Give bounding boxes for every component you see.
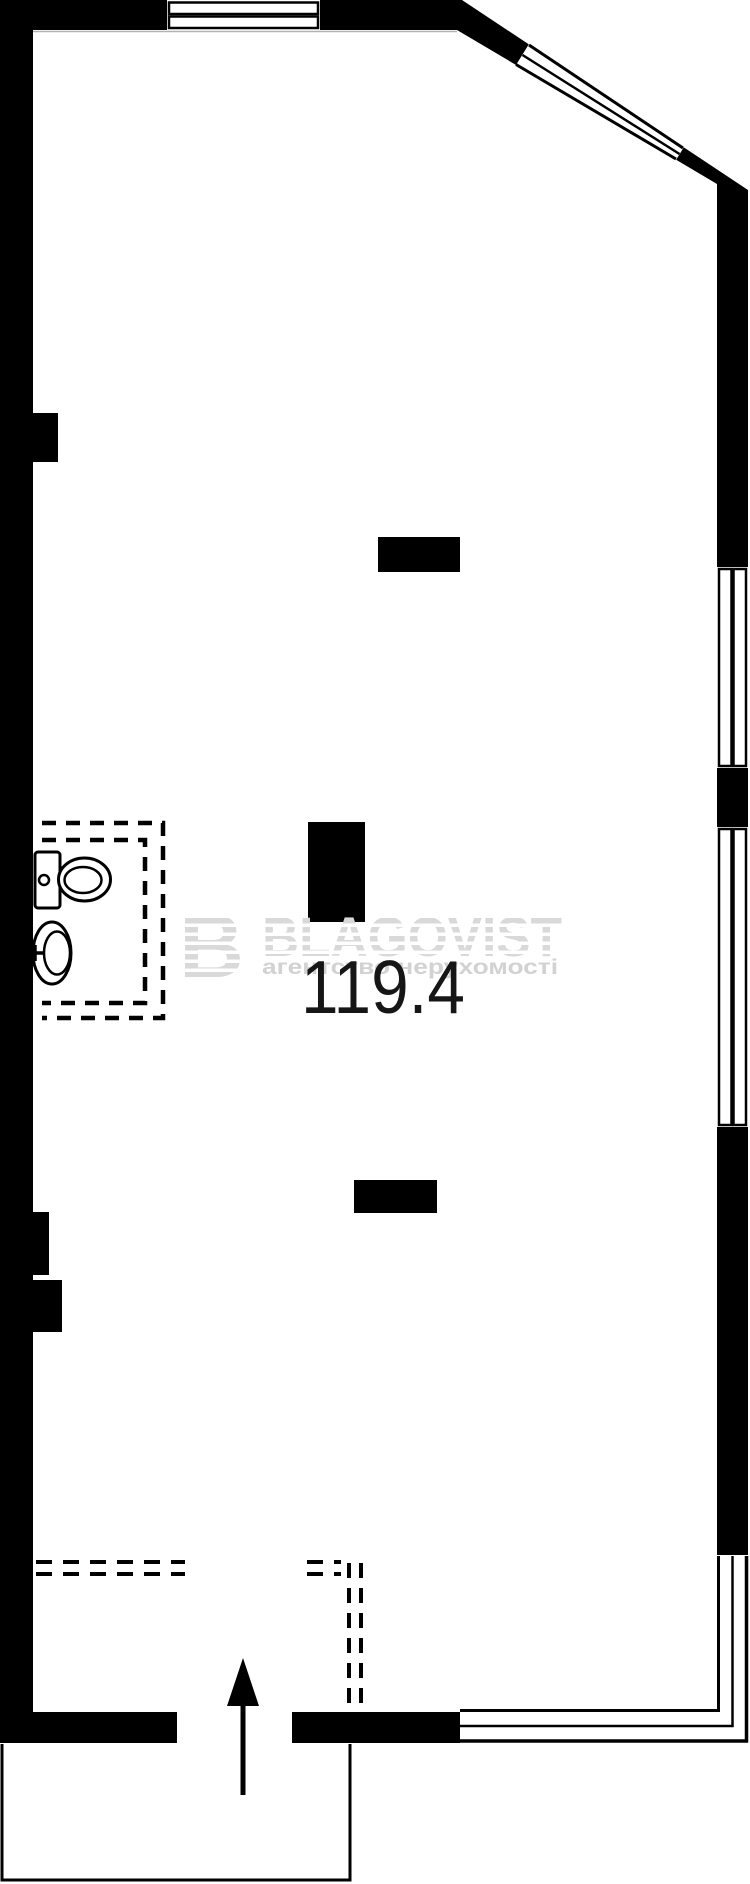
wall-stub-lower-small [33,1212,49,1275]
column-lower [354,1180,437,1213]
watermark-logo: B [179,897,244,997]
top-window [167,0,320,30]
walls [0,0,748,1743]
sink-icon [27,922,71,984]
porch-outline [2,1744,350,1880]
corner-window [460,1555,748,1743]
partition-dashed-line [349,1563,361,1704]
wall-stub-lower-large [33,1280,62,1332]
entry-door-gap [177,1710,292,1745]
floor-plan: B BLAGOVIST агентство нерухомості 119.4 [0,0,750,1884]
toilet-icon [35,852,111,908]
floor-plan-svg: B BLAGOVIST агентство нерухомості 119.4 [0,0,750,1884]
right-window-upper [717,567,748,768]
right-window-middle [717,827,748,1127]
diagonal-window [516,44,684,160]
wardrobe-dashed-line [36,1562,341,1574]
column-upper [378,537,460,572]
area-label: 119.4 [301,945,465,1029]
wall-stub-upper [33,413,58,462]
